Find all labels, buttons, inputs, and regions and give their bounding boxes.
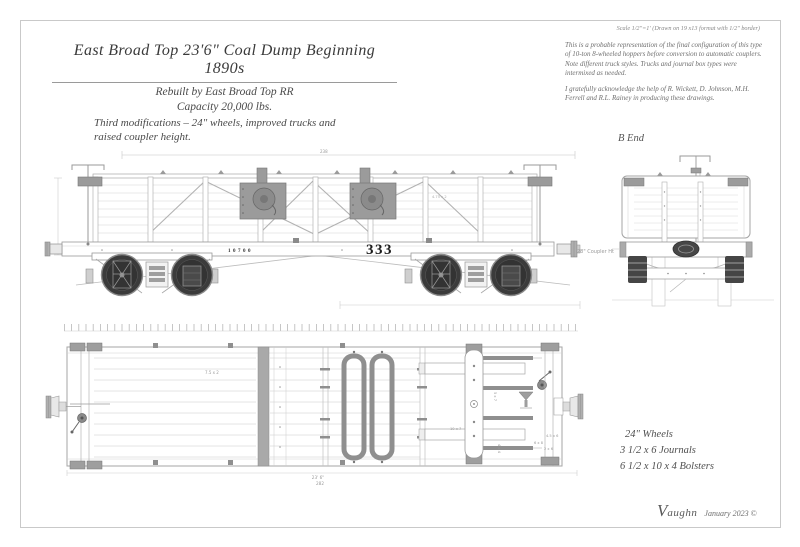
- b-end-label: B End: [618, 133, 644, 144]
- board-dimension-label: 4.75 x 2: [432, 195, 447, 199]
- end-view-drawing: [612, 150, 777, 310]
- top-dimension-line: [122, 151, 575, 159]
- spring-right: [725, 256, 744, 283]
- length-inches-label: 282: [316, 481, 324, 486]
- dim-label: 4 x 4: [497, 444, 501, 454]
- side-view-drawing: 238: [42, 147, 587, 315]
- end-stake-pockets: [657, 172, 711, 176]
- subtitle-modifications: Third modifications – 24" wheels, improv…: [94, 117, 352, 145]
- dim-label: 2 x 6: [544, 447, 554, 451]
- bolster-band: [258, 347, 269, 466]
- height-dimension-line: [54, 178, 62, 255]
- drawing-sheet: East Broad Top 23'6" Coal Dump Beginning…: [0, 0, 800, 547]
- length-feet-label: 23' 6": [312, 475, 324, 480]
- dim-label: 4.5 x 6: [546, 434, 559, 438]
- spec-wheels: 24" Wheels: [620, 427, 714, 443]
- dim-label: 5 x 7: [493, 392, 497, 401]
- description-note: This is a probable representation of the…: [565, 41, 765, 78]
- lower-dimension-line: [340, 301, 580, 309]
- scale-ruler: [64, 328, 578, 332]
- length-dimension: 23' 6" 282: [67, 470, 577, 486]
- plan-view-drawing: 7.5 x 2: [42, 322, 587, 512]
- plank-dimension-label: 7.5 x 2: [205, 370, 219, 375]
- brake-staff-left: [72, 165, 104, 246]
- dim-label: 10 x 7: [450, 427, 461, 431]
- signature-date: January 2023 ©: [704, 509, 756, 518]
- signature-name: aughn: [667, 507, 697, 519]
- body-posts: [93, 177, 537, 242]
- corner-bracket-left: [624, 178, 644, 186]
- scale-note: Scale 1/2"=1' (Drawn on 19 x13 format wi…: [558, 25, 760, 32]
- journal-box: [183, 266, 201, 286]
- spring-left: [628, 256, 647, 283]
- truck-left: [86, 253, 218, 296]
- subtitle-rebuilt: Rebuilt by East Broad Top RR: [52, 86, 397, 98]
- subtitle-capacity: Capacity 20,000 lbs.: [52, 101, 397, 113]
- brake-staff-right: [524, 165, 556, 246]
- title-block: East Broad Top 23'6" Coal Dump Beginning…: [52, 42, 397, 145]
- truck-right: [405, 253, 537, 296]
- drawing-title: East Broad Top 23'6" Coal Dump Beginning…: [52, 42, 397, 83]
- spring-pack: [146, 262, 168, 287]
- spec-journals: 3 1/2 x 6 Journals: [620, 443, 714, 459]
- car-number-small: 10700: [228, 249, 253, 254]
- top-dimension-label: 238: [320, 149, 328, 154]
- coupler-left: [45, 242, 62, 256]
- coupler-height-label: 28" Coupler Ht: [577, 249, 614, 255]
- car-number-large: 333: [366, 242, 393, 258]
- specs-block: 24" Wheels 3 1/2 x 6 Journals 6 1/2 x 10…: [620, 427, 714, 475]
- signature-initial: V: [657, 501, 667, 520]
- dim-label: 6 x 8: [534, 441, 544, 445]
- plan-coupler-right: [563, 394, 583, 419]
- acknowledgement-note: I gratefully acknowledge the help of R. …: [565, 85, 765, 104]
- signature: VaughnJanuary 2023 ©: [657, 501, 757, 521]
- corner-bracket-right: [728, 178, 748, 186]
- end-coupler: [673, 241, 699, 257]
- stake-pockets: [160, 170, 514, 174]
- spec-bolsters: 6 1/2 x 10 x 4 Bolsters: [620, 459, 714, 475]
